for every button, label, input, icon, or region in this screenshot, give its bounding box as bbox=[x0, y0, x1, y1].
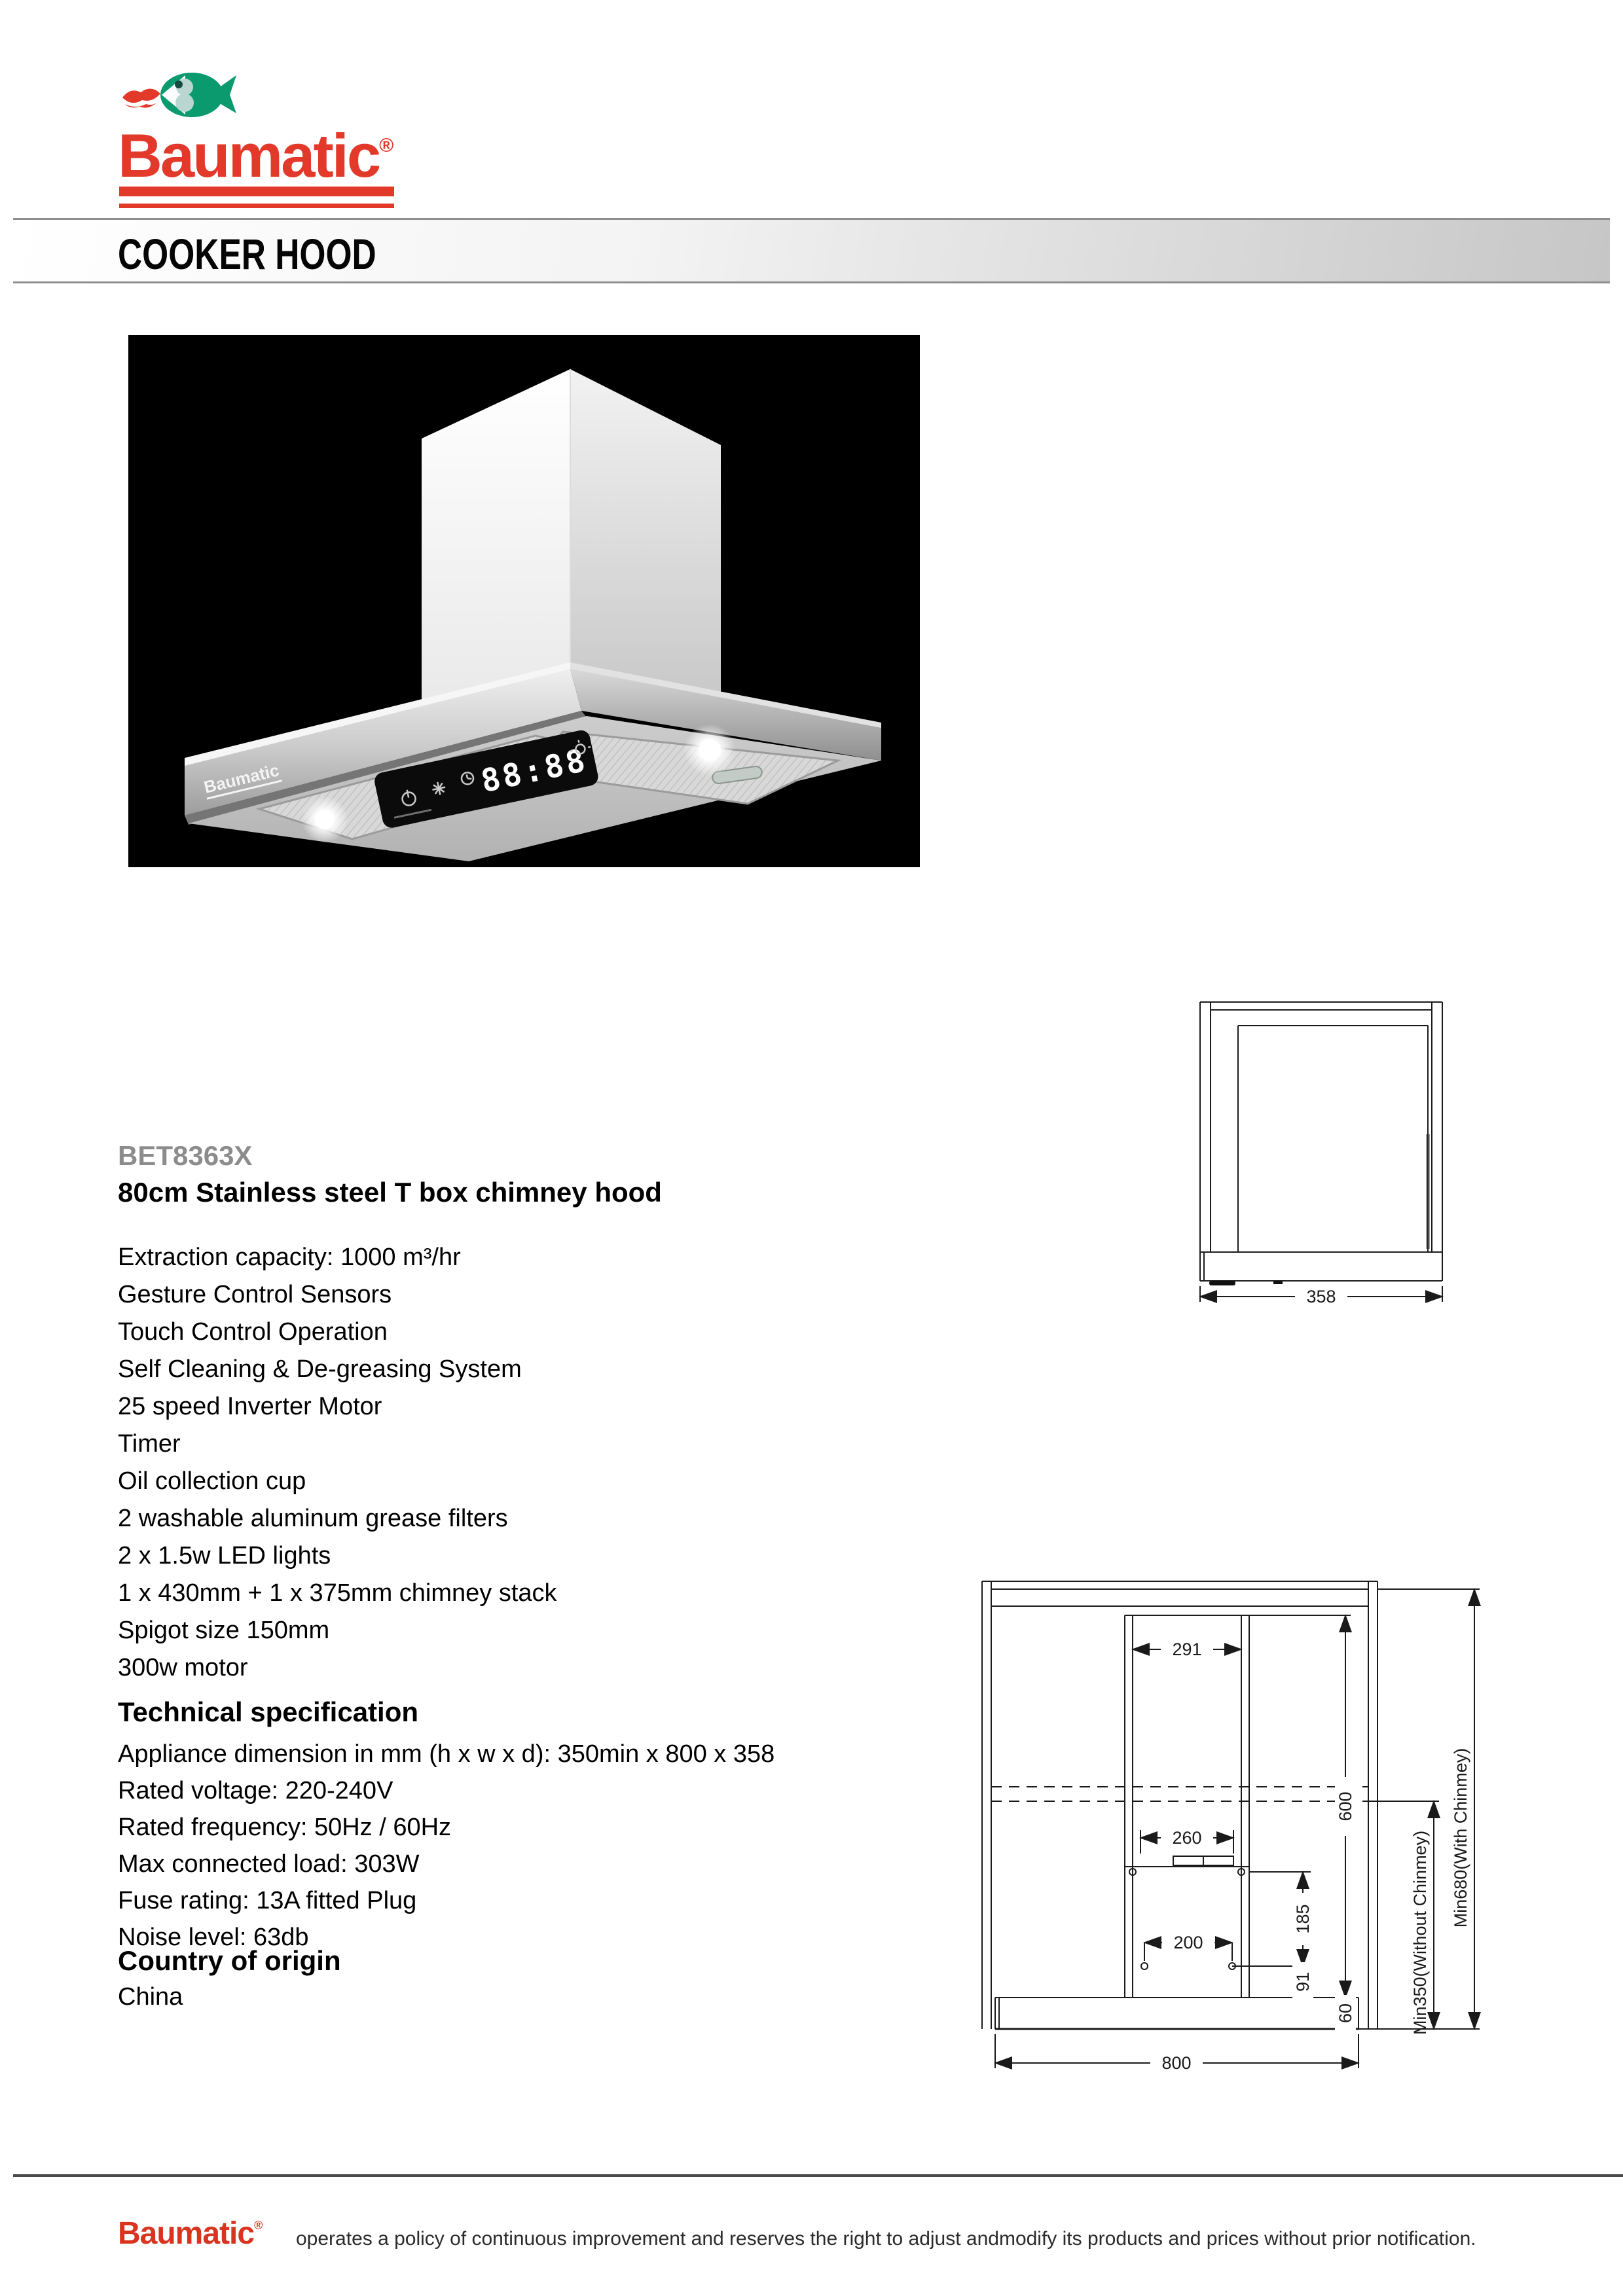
section-header-bar: COOKER HOOD bbox=[13, 218, 1610, 283]
feature-line: 2 washable aluminum grease filters bbox=[118, 1500, 936, 1537]
product-model: BET8363X bbox=[118, 1140, 252, 1172]
product-photo: 88:88 Baumatic bbox=[128, 335, 920, 867]
trademark-symbol: ® bbox=[379, 135, 393, 156]
feature-line: Extraction capacity: 1000 m³/hr bbox=[118, 1239, 936, 1276]
svg-text:60: 60 bbox=[1336, 2003, 1355, 2023]
footer-disclaimer: operates a policy of continuous improvem… bbox=[296, 2228, 1573, 2250]
front-view-diagram: 291 260 200 600 185 91 60 800 bbox=[976, 1576, 1493, 2087]
logo-underline-thick bbox=[119, 187, 394, 196]
brand-name: Baumatic bbox=[118, 121, 379, 190]
feature-line: 1 x 430mm + 1 x 375mm chimney stack bbox=[118, 1575, 936, 1612]
feature-line: Self Cleaning & De-greasing System bbox=[118, 1351, 936, 1388]
min-height-with-chimney-label: Min680(With Chinmey) bbox=[1451, 1748, 1470, 1928]
svg-text:91: 91 bbox=[1293, 1972, 1313, 1992]
svg-text:358: 358 bbox=[1306, 1287, 1336, 1304]
svg-text:600: 600 bbox=[1336, 1791, 1355, 1821]
min-height-without-chimney-label: Min350(Without Chinmey) bbox=[1410, 1831, 1430, 2035]
chimney-height-dim: 600 bbox=[1335, 1777, 1356, 1836]
side-width-dim: 358 bbox=[1295, 1286, 1347, 1304]
led-light-left bbox=[301, 796, 348, 843]
baumatic-logo: Baumatic® bbox=[118, 56, 458, 219]
footer-brand-name: Baumatic bbox=[118, 2216, 254, 2251]
spec-sheet-page: Baumatic® COOKER HOOD bbox=[0, 0, 1623, 2296]
svg-text:200: 200 bbox=[1173, 1933, 1203, 1952]
feature-list: Extraction capacity: 1000 m³/hrGesture C… bbox=[118, 1239, 936, 1687]
side-view-diagram: 358 bbox=[1195, 997, 1467, 1304]
feature-line: Timer bbox=[118, 1426, 936, 1463]
feature-line: Touch Control Operation bbox=[118, 1314, 936, 1351]
origin-heading: Country of origin bbox=[118, 1945, 341, 1977]
origin-value: China bbox=[118, 1983, 183, 2011]
cooker-hood-illustration: 88:88 Baumatic bbox=[128, 335, 920, 867]
brand-wordmark: Baumatic® bbox=[118, 113, 393, 188]
footer-divider bbox=[13, 2174, 1623, 2177]
page-title: COOKER HOOD bbox=[118, 229, 376, 279]
feature-line: Gesture Control Sensors bbox=[118, 1276, 936, 1314]
tech-spec-line: Rated voltage: 220-240V bbox=[118, 1772, 969, 1809]
total-width-dim: 800 bbox=[1150, 2053, 1203, 2073]
fish-icon bbox=[160, 73, 236, 117]
holes-spacing-dim: 200 bbox=[1162, 1932, 1214, 1953]
chimney-width-dim: 291 bbox=[1161, 1639, 1213, 1660]
mount-height-dim: 185 bbox=[1292, 1893, 1313, 1945]
footer-brand: Baumatic® bbox=[118, 2215, 262, 2251]
feature-line: 2 x 1.5w LED lights bbox=[118, 1537, 936, 1575]
svg-text:Min350(Without Chinmey): Min350(Without Chinmey) bbox=[1410, 1831, 1430, 2035]
svg-text:800: 800 bbox=[1161, 2053, 1191, 2073]
feature-line: Oil collection cup bbox=[118, 1463, 936, 1500]
tech-spec-line: Fuse rating: 13A fitted Plug bbox=[118, 1882, 969, 1919]
tech-spec-heading: Technical specification bbox=[118, 1696, 418, 1728]
feature-line: Spigot size 150mm bbox=[118, 1612, 936, 1649]
spigot-width-dim: 260 bbox=[1161, 1827, 1213, 1848]
feature-line: 25 speed Inverter Motor bbox=[118, 1388, 936, 1426]
svg-text:260: 260 bbox=[1172, 1828, 1201, 1848]
tech-spec-line: Max connected load: 303W bbox=[118, 1846, 969, 1882]
svg-text:185: 185 bbox=[1293, 1904, 1313, 1933]
tech-spec-list: Appliance dimension in mm (h x w x d): 3… bbox=[118, 1736, 969, 1956]
hole-offset-dim: 91 bbox=[1292, 1962, 1313, 2001]
product-name: 80cm Stainless steel T box chimney hood bbox=[118, 1177, 662, 1208]
logo-underline-thin bbox=[119, 204, 394, 208]
svg-text:291: 291 bbox=[1172, 1640, 1201, 1659]
led-light-right bbox=[684, 724, 736, 776]
lips-icon bbox=[122, 88, 160, 107]
footer-trademark-symbol: ® bbox=[254, 2219, 262, 2232]
body-height-dim: 60 bbox=[1335, 1995, 1356, 2032]
feature-line: 300w motor bbox=[118, 1649, 936, 1687]
tech-spec-line: Rated frequency: 50Hz / 60Hz bbox=[118, 1809, 969, 1846]
svg-text:Min680(With Chinmey): Min680(With Chinmey) bbox=[1451, 1748, 1470, 1928]
tech-spec-line: Appliance dimension in mm (h x w x d): 3… bbox=[118, 1736, 969, 1772]
